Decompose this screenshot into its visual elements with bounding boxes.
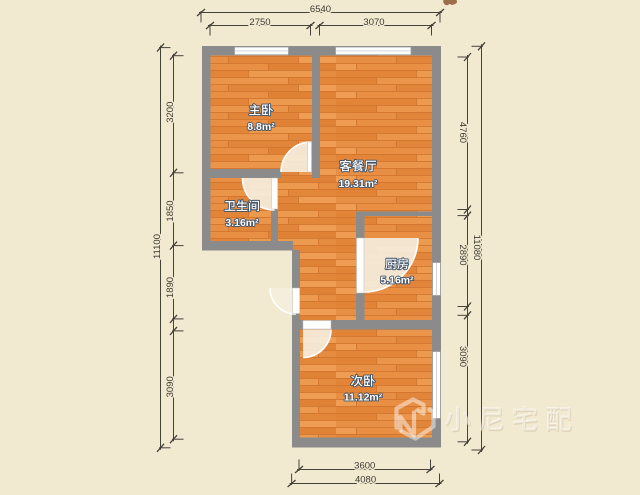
svg-text:1850: 1850 (165, 200, 176, 221)
svg-text:3090: 3090 (457, 346, 468, 367)
svg-text:4080: 4080 (355, 475, 376, 486)
svg-text:5.16m²: 5.16m² (380, 275, 414, 287)
svg-text:4760: 4760 (457, 122, 468, 143)
svg-text:6540: 6540 (310, 4, 331, 15)
svg-text:11.12m²: 11.12m² (344, 392, 383, 404)
svg-text:19.31m²: 19.31m² (338, 178, 378, 190)
svg-text:3200: 3200 (165, 102, 176, 123)
svg-text:2890: 2890 (457, 244, 468, 265)
svg-text:2750: 2750 (249, 17, 270, 28)
svg-text:11100: 11100 (152, 234, 163, 259)
svg-text:3070: 3070 (363, 17, 384, 28)
svg-text:1890: 1890 (165, 277, 176, 298)
svg-text:8.8m²: 8.8m² (247, 121, 275, 133)
svg-text:3.16m²: 3.16m² (225, 217, 259, 229)
svg-text:11080: 11080 (471, 235, 482, 261)
svg-text:3090: 3090 (165, 376, 176, 397)
svg-text:3600: 3600 (354, 461, 375, 472)
